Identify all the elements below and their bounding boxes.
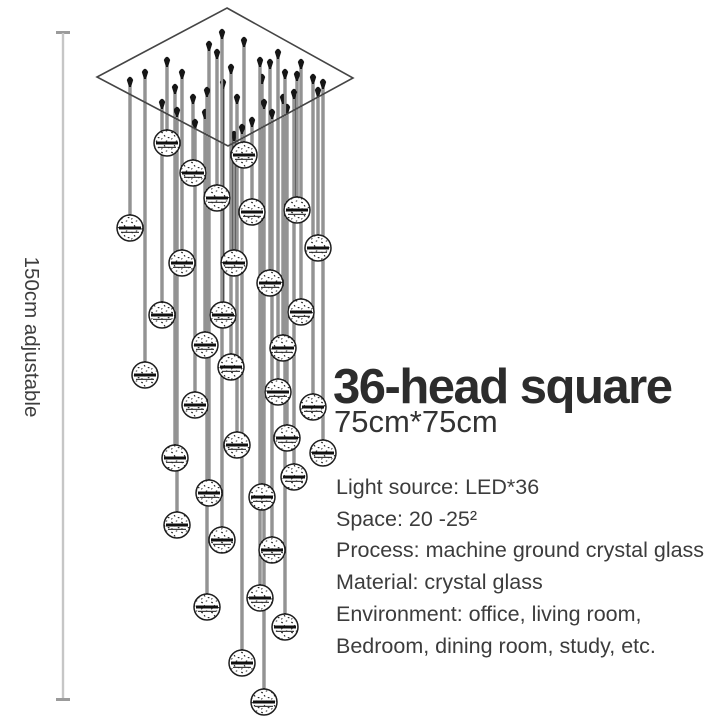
spec-line-process: Process: machine ground crystal glass xyxy=(336,535,704,567)
spec-line-light-source: Light source: LED*36 xyxy=(336,472,704,504)
spec-line-material: Material: crystal glass xyxy=(336,567,704,599)
crystal-balls xyxy=(117,130,336,715)
height-label: 150cm adjustable xyxy=(19,253,43,421)
product-size: 75cm*75cm xyxy=(334,406,498,437)
dimension-arrow xyxy=(56,33,70,700)
product-specs: Light source: LED*36 Space: 20 -25² Proc… xyxy=(336,472,704,662)
spec-line-environment-2: Bedroom, dining room, study, etc. xyxy=(336,631,704,663)
product-image: 150cm adjustable 36-head square 75cm*75c… xyxy=(0,0,720,720)
spec-line-space: Space: 20 -25² xyxy=(336,504,704,536)
spec-line-environment: Environment: office, living room, xyxy=(336,599,704,631)
